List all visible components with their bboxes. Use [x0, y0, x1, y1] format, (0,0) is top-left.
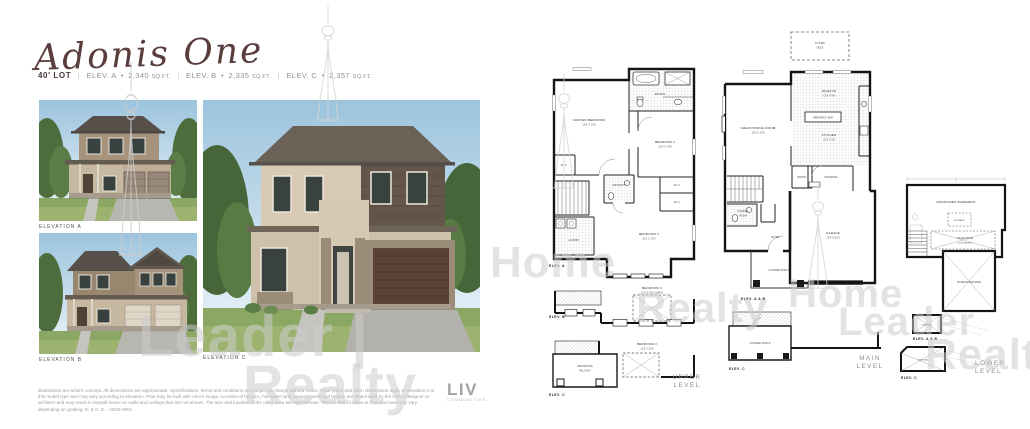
room-dims-bedroom2: 12'4 X 10'8	[658, 145, 672, 149]
room-label-powder-1: POWDER	[738, 210, 749, 213]
room-label-wic-b: W.I.C.	[674, 201, 681, 204]
island-label: BREAKFAST BAR	[813, 117, 833, 120]
spec-elev-a: ELEV. A	[87, 71, 117, 80]
spec-sqft-c: 2,357	[329, 71, 350, 80]
room-label-wic-a: W.I.C.	[674, 184, 681, 187]
lot-size: 40' LOT	[38, 71, 71, 80]
main-level-title-2: LEVEL	[857, 363, 884, 370]
lower-elev-c-label: ELEV. C	[901, 376, 917, 380]
elevation-c-label: ELEVATION C	[203, 355, 480, 361]
label-unexc-ab: UNEXCAV.	[922, 324, 933, 327]
elevation-b-image	[39, 233, 197, 354]
spec-separator: |	[278, 71, 280, 80]
spec-unit-c: SQ.FT.	[353, 74, 372, 80]
label-crawlspace-1: CRAWLSPACE	[957, 237, 974, 240]
upper-elev-c-drawing: DECORATIVE BALCONY BEDROOM 3 11'6 X 10'0…	[549, 341, 702, 397]
elevation-b-label: ELEVATION B	[39, 357, 197, 363]
room-label-pantry: PANTRY	[797, 176, 807, 179]
lower-elev-ab-label: ELEV. A & B	[913, 337, 938, 341]
elevation-c-image	[203, 100, 480, 352]
main-elev-ab-label: ELEV. A & B	[741, 297, 766, 301]
floorplan-main-svg: FUTURE DECK GREAT/DINING ROOM 18'0 X 13'…	[713, 26, 893, 390]
label-unfinished-basement: UNFINISHED BASEMENT	[936, 200, 975, 204]
elevation-b-rendering: ELEVATION B	[39, 233, 197, 363]
upper-level-title-2: LEVEL	[674, 382, 701, 389]
main-level-title-1: MAIN	[859, 355, 881, 362]
elevation-a-rendering: ELEVATION A	[39, 100, 197, 230]
room-label-main-bath: MAIN BATH	[613, 184, 626, 187]
floorplan-upper-svg: MASTER BEDROOM 16'4 X 13'6 ENSUITE BEDRO…	[543, 55, 708, 405]
spec-separator: |	[78, 71, 80, 80]
room-dims-bedroom3-b: 11'6 X 10'0 (+BAY)	[641, 290, 663, 294]
builder-logo: LIV COMMUNITIES	[447, 382, 486, 402]
label-unexcavated: UNEXCAVATED	[957, 280, 982, 284]
spec-bullet-a: •	[121, 71, 124, 80]
room-label-mudroom: MUDROOM	[825, 176, 838, 179]
spec-sqft-a: 2,340	[128, 71, 149, 80]
logo-wordmark: LIV	[447, 382, 486, 397]
room-label-wic-master: W.I.C.	[561, 164, 568, 167]
spec-unit-b: SQ.FT.	[252, 74, 271, 80]
main-elev-ab-drawing: FUTURE DECK GREAT/DINING ROOM 18'0 X 13'…	[722, 32, 875, 301]
room-label-balcony-1: DECORATIVE	[577, 365, 593, 368]
label-furnace: FURNACE	[954, 219, 965, 222]
label-future-deck-2: DECK	[817, 47, 824, 50]
room-label-master: MASTER BEDROOM	[573, 118, 605, 122]
lower-level-title-2: LEVEL	[975, 368, 1002, 375]
elevation-a-label: ELEVATION A	[39, 224, 197, 230]
spec-sqft-b: 2,335	[229, 71, 250, 80]
room-label-bedroom3-b: BEDROOM 3	[642, 286, 662, 290]
logo-tagline: COMMUNITIES	[447, 398, 486, 402]
room-label-ensuite: ENSUITE	[655, 93, 666, 96]
room-label-garage: GARAGE	[826, 231, 840, 235]
room-label-porch: COVERED PORCH	[768, 269, 789, 272]
spec-elev-b: ELEV. B	[186, 71, 216, 80]
spec-line: 40' LOT | ELEV. A • 2,340 SQ.FT. | ELEV.…	[38, 71, 372, 80]
spec-elev-c: ELEV. C	[286, 71, 317, 80]
upper-level-title-1: UPPER	[672, 374, 701, 381]
room-dims-garage: 19'4 X 20'4	[826, 236, 840, 240]
spec-bullet-b: •	[221, 71, 224, 80]
room-label-balcony-2: BALCONY	[579, 370, 591, 373]
room-label-powder-2: ROOM	[739, 215, 746, 218]
room-label-great: GREAT/DINING ROOM	[740, 126, 775, 130]
label-crawlspace-2: (LOW HEIGHT)	[958, 243, 973, 245]
spec-bullet-c: •	[322, 71, 325, 80]
elevation-a-image	[39, 100, 197, 221]
upper-elev-b-label: ELEV. B	[549, 315, 565, 319]
spec-separator: |	[177, 71, 179, 80]
room-dims-master: 16'4 X 13'6	[582, 123, 596, 127]
main-elev-c-drawing: COVERED PORCH ELEV. C MAIN LEVEL	[729, 312, 883, 371]
room-label-dinette: DINETTE	[822, 89, 836, 93]
main-elev-c-label: ELEV. C	[729, 367, 745, 371]
elevation-c-rendering: ELEVATION C	[203, 100, 480, 361]
floorplan-lower-svg: UNFINISHED BASEMENT FURNACE CRAWLSPACE (…	[893, 173, 1030, 403]
floorplan-upper: MASTER BEDROOM 16'4 X 13'6 ENSUITE BEDRO…	[543, 55, 708, 405]
label-unexc-c: UNEXCAV.	[918, 359, 929, 362]
room-label-foyer: FOYER	[771, 236, 780, 239]
upper-elev-a-drawing: MASTER BEDROOM 16'4 X 13'6 ENSUITE BEDRO…	[549, 68, 695, 278]
upper-elev-b-drawing: BEDROOM 3 11'6 X 10'0 (+BAY) ELEV. B	[549, 286, 694, 326]
room-label-bedroom3: BEDROOM 3	[639, 232, 659, 236]
brochure-page: { "header": { "title": "Adonis One", "lo…	[0, 0, 1030, 429]
floorplan-lower: UNFINISHED BASEMENT FURNACE CRAWLSPACE (…	[893, 173, 1030, 403]
upper-elev-c-label: ELEV. C	[549, 393, 565, 397]
room-label-bedroom2: BEDROOM 2	[655, 140, 675, 144]
spec-unit-a: SQ.FT.	[151, 74, 170, 80]
room-label-laundry: LAUNDRY	[568, 239, 580, 242]
room-dims-great: 18'0 X 13'0	[751, 131, 765, 135]
room-label-bedroom3-c: BEDROOM 3	[637, 342, 657, 346]
room-dims-bedroom3-c: 11'6 X 10'0	[640, 347, 654, 351]
disclaimer-text: Illustrations are artist's concept. All …	[38, 388, 436, 413]
room-dims-bedroom3: 11'6 X 10'0	[642, 237, 656, 241]
lower-level-title-1: LOWER	[975, 360, 1005, 367]
room-dims-kitchen: 12'0 X 9'0	[823, 138, 835, 142]
room-dims-dinette: 12'0 X 9'6	[823, 94, 835, 98]
upper-elev-a-label: ELEV. A	[549, 264, 565, 268]
room-label-kitchen: KITCHEN	[822, 133, 837, 137]
lower-drawing: UNFINISHED BASEMENT FURNACE CRAWLSPACE (…	[901, 177, 1005, 380]
floorplan-main: FUTURE DECK GREAT/DINING ROOM 18'0 X 13'…	[713, 26, 893, 390]
label-future-deck-1: FUTURE	[815, 42, 825, 45]
room-label-porch-c: COVERED PORCH	[749, 342, 770, 345]
